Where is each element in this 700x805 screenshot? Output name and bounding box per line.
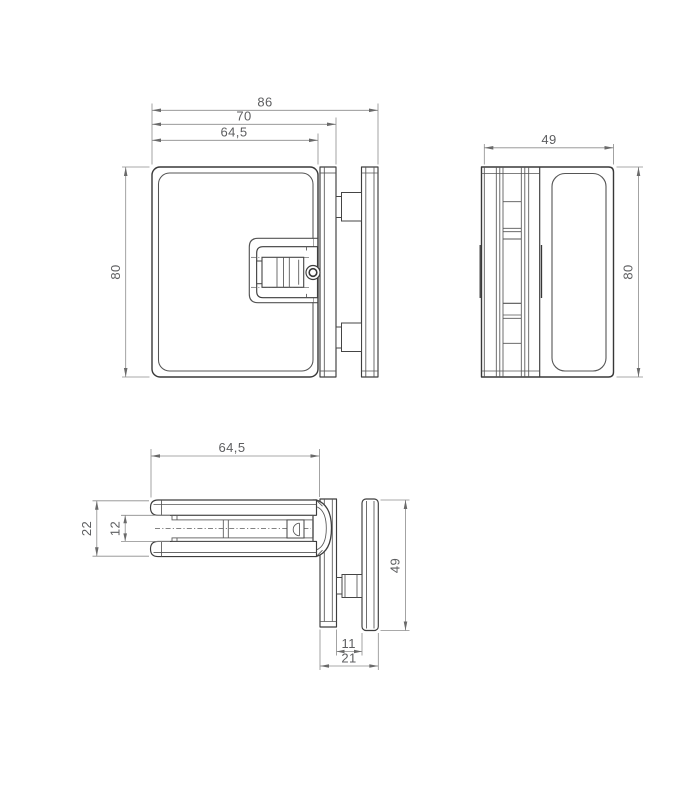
side-outline [482, 167, 614, 377]
technical-drawing-canvas: 86 70 64,5 80 [0, 0, 700, 800]
front-wall-plate-edge [320, 167, 336, 377]
screw-socket-icon [309, 269, 317, 277]
dim-text-21: 21 [341, 651, 356, 666]
hinge-pin [262, 257, 304, 287]
dim-text-11: 11 [342, 636, 356, 651]
front-spacer-bottom [336, 323, 362, 352]
top-liner-upper [172, 515, 313, 520]
pin-left-tab [257, 261, 262, 284]
dim-text-22: 22 [79, 521, 94, 536]
spacer-flange [336, 197, 342, 218]
dim-text-49-side: 49 [541, 132, 556, 147]
side-dimension-height: 80 [617, 167, 644, 377]
spacer-block [342, 323, 362, 352]
spacer-block [342, 193, 362, 222]
dim-text-64-5-top: 64,5 [219, 440, 246, 455]
side-dimension-width: 49 [484, 132, 613, 165]
top-dimension-glass-gap: 12 [108, 515, 171, 541]
dim-text-12: 12 [108, 521, 123, 536]
dim-text-80-front: 80 [108, 264, 123, 279]
front-dimensions-top: 86 70 64,5 [152, 95, 378, 165]
top-pin-block [287, 520, 304, 538]
spacer-flange [336, 327, 342, 348]
front-view: 86 70 64,5 80 [108, 95, 378, 378]
dim-text-86: 86 [257, 95, 272, 110]
top-jaw-upper [151, 500, 317, 515]
drawing-page: 86 70 64,5 80 [0, 0, 700, 800]
dim-text-70: 70 [236, 109, 251, 124]
top-dimension-plate-height: 49 [381, 500, 410, 631]
dim-text-80-side: 80 [621, 264, 636, 279]
front-dimension-height: 80 [108, 167, 150, 377]
dim-text-64-5: 64,5 [221, 125, 248, 140]
front-cover-plate-edge [362, 167, 379, 377]
front-spacer-top [336, 193, 362, 222]
top-view: 64,5 22 12 49 [79, 440, 410, 670]
top-spacer [337, 575, 363, 598]
top-cover-plate [362, 499, 378, 631]
top-jaw-lower [151, 541, 317, 556]
top-dimension-width: 64,5 [151, 440, 320, 498]
dim-text-49-top: 49 [388, 558, 403, 573]
spacer-flange [337, 578, 343, 595]
side-view: 49 80 [480, 132, 643, 377]
